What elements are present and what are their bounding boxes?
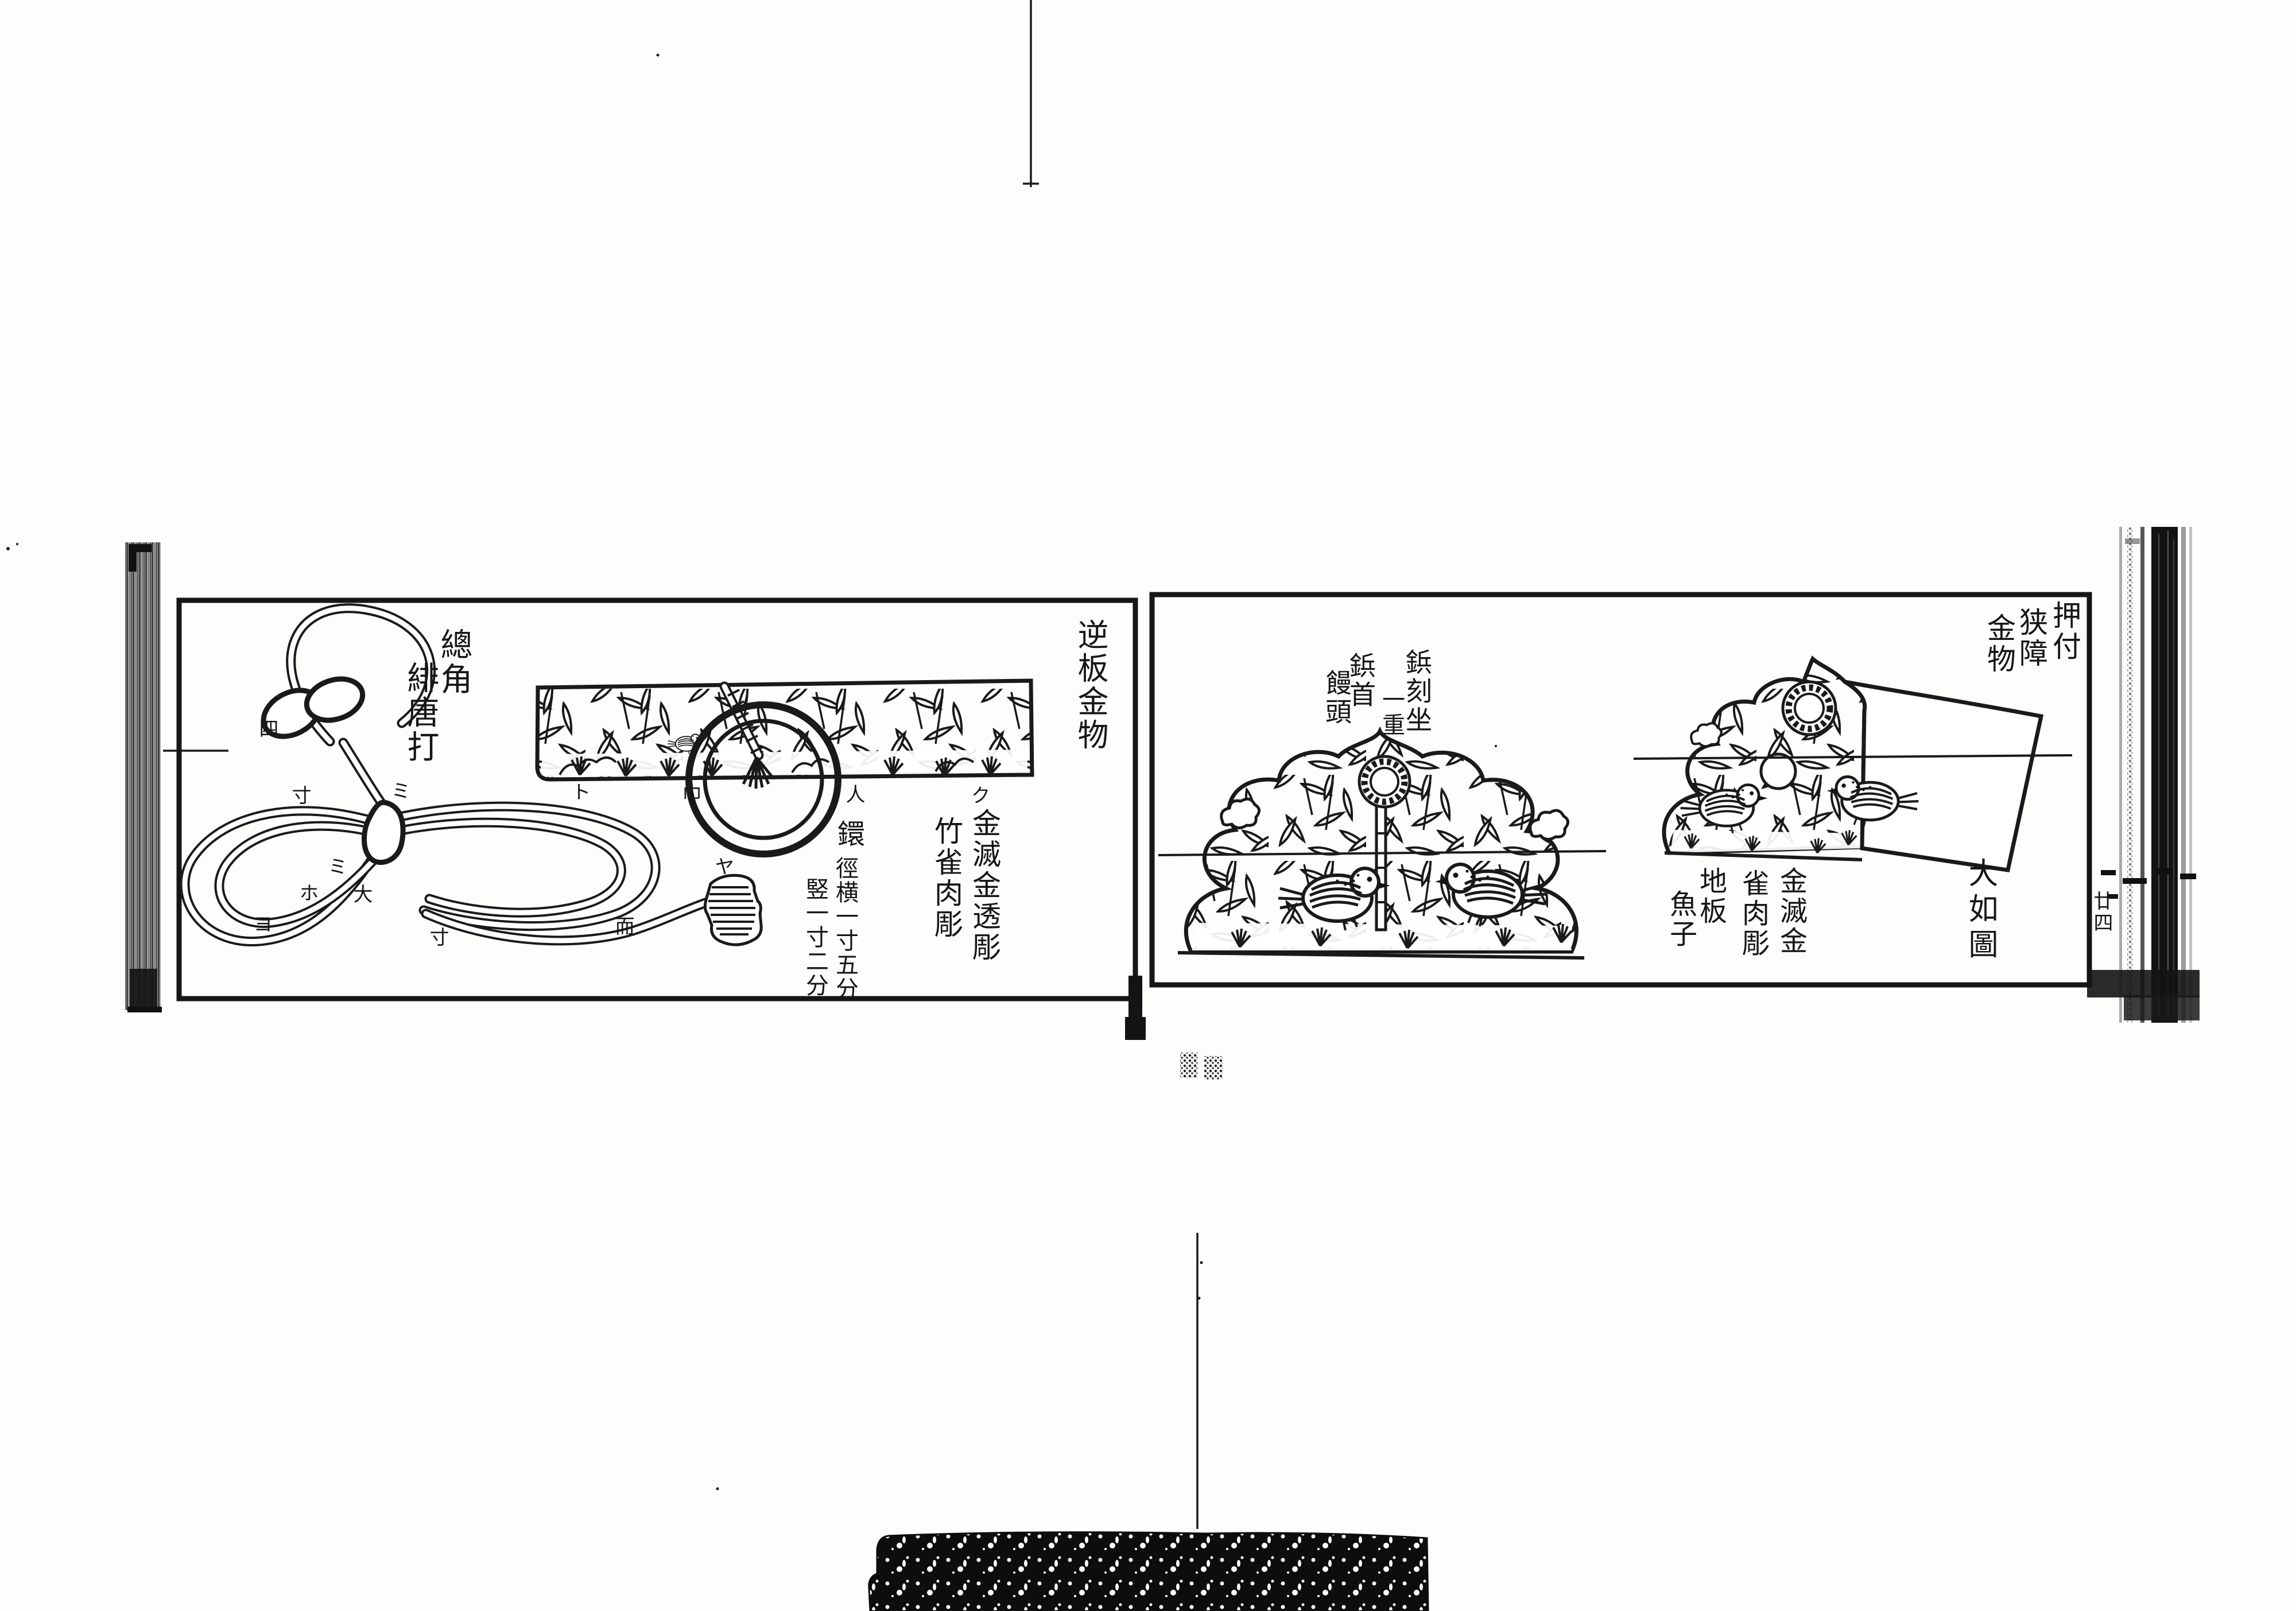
left-side-title: 逆板金物: [1075, 619, 1106, 752]
left-spec-col-2: 竹雀肉彫: [932, 816, 961, 940]
oshitsuke-fitting-right-illustration: [1634, 659, 2072, 870]
rivet-note-col-4: 饅頭: [1324, 669, 1350, 727]
finish-note-col-3: 地板: [1697, 867, 1724, 926]
ring-dim-sub: 竪一寸二分: [804, 877, 827, 997]
oshitsuke-fitting-left-illustration: [1158, 731, 1606, 958]
left-title-col-1: 總角: [437, 628, 470, 697]
rivet-hole: [1761, 754, 1795, 789]
knot-mark: 大: [351, 884, 371, 906]
band-mark: ト: [569, 782, 589, 803]
scanner-bed-black-area: [869, 1532, 1428, 1611]
knot-mark: 寸: [428, 927, 447, 949]
knot-mark: ホ: [297, 883, 317, 905]
knot-mark: ヨ: [251, 914, 271, 935]
knot-mark: ミ: [326, 856, 346, 878]
woodblock-line-art: [0, 0, 2296, 1611]
knot-mark: 而: [613, 916, 633, 938]
left-title-col-2: 緋唐打: [404, 661, 436, 764]
size-note: 大如圖: [1965, 857, 1995, 964]
finish-note-col-1: 金滅金: [1777, 867, 1805, 956]
center-fold-artifacts: [1023, 0, 1223, 1529]
band-mark: ク: [969, 785, 988, 807]
right-title-col-1: 押付: [2050, 600, 2079, 662]
right-title-col-3: 金物: [1985, 613, 2014, 675]
scanned-book-page: 總角 緋唐打 逆板金物 金滅金透彫 竹雀肉彫 鐶 徑横一寸五分 竪一寸二分 四 …: [0, 0, 2296, 1611]
knot-mark: ミ: [389, 781, 409, 802]
center-fold-line-top: [1023, 0, 1039, 187]
band-mark: 人: [844, 784, 863, 806]
knot-mark: 寸: [290, 785, 309, 807]
rivet-note-col-2: 一重: [1380, 688, 1403, 738]
scan-streaks-right-margin: [2087, 527, 2200, 1023]
ring-label: 鐶: [835, 820, 862, 849]
knot-mark: ヤ: [713, 856, 732, 878]
fitting-side-face: [1845, 682, 2041, 870]
knot-mark: 四: [257, 719, 277, 740]
band-mark: 巾: [680, 783, 700, 805]
ring-dim-main: 徑横一寸五分: [833, 856, 856, 1001]
rivet-note-col-1: 鋲刻坐: [1404, 649, 1430, 735]
left-spec-col-1: 金滅金透彫: [970, 808, 999, 963]
page-number: 廿四: [2092, 891, 2111, 934]
finish-note-col-4: 魚子: [1667, 890, 1694, 949]
right-title-col-2: 狭障: [2017, 607, 2046, 669]
finish-note-col-2: 雀肉彫: [1739, 869, 1767, 958]
